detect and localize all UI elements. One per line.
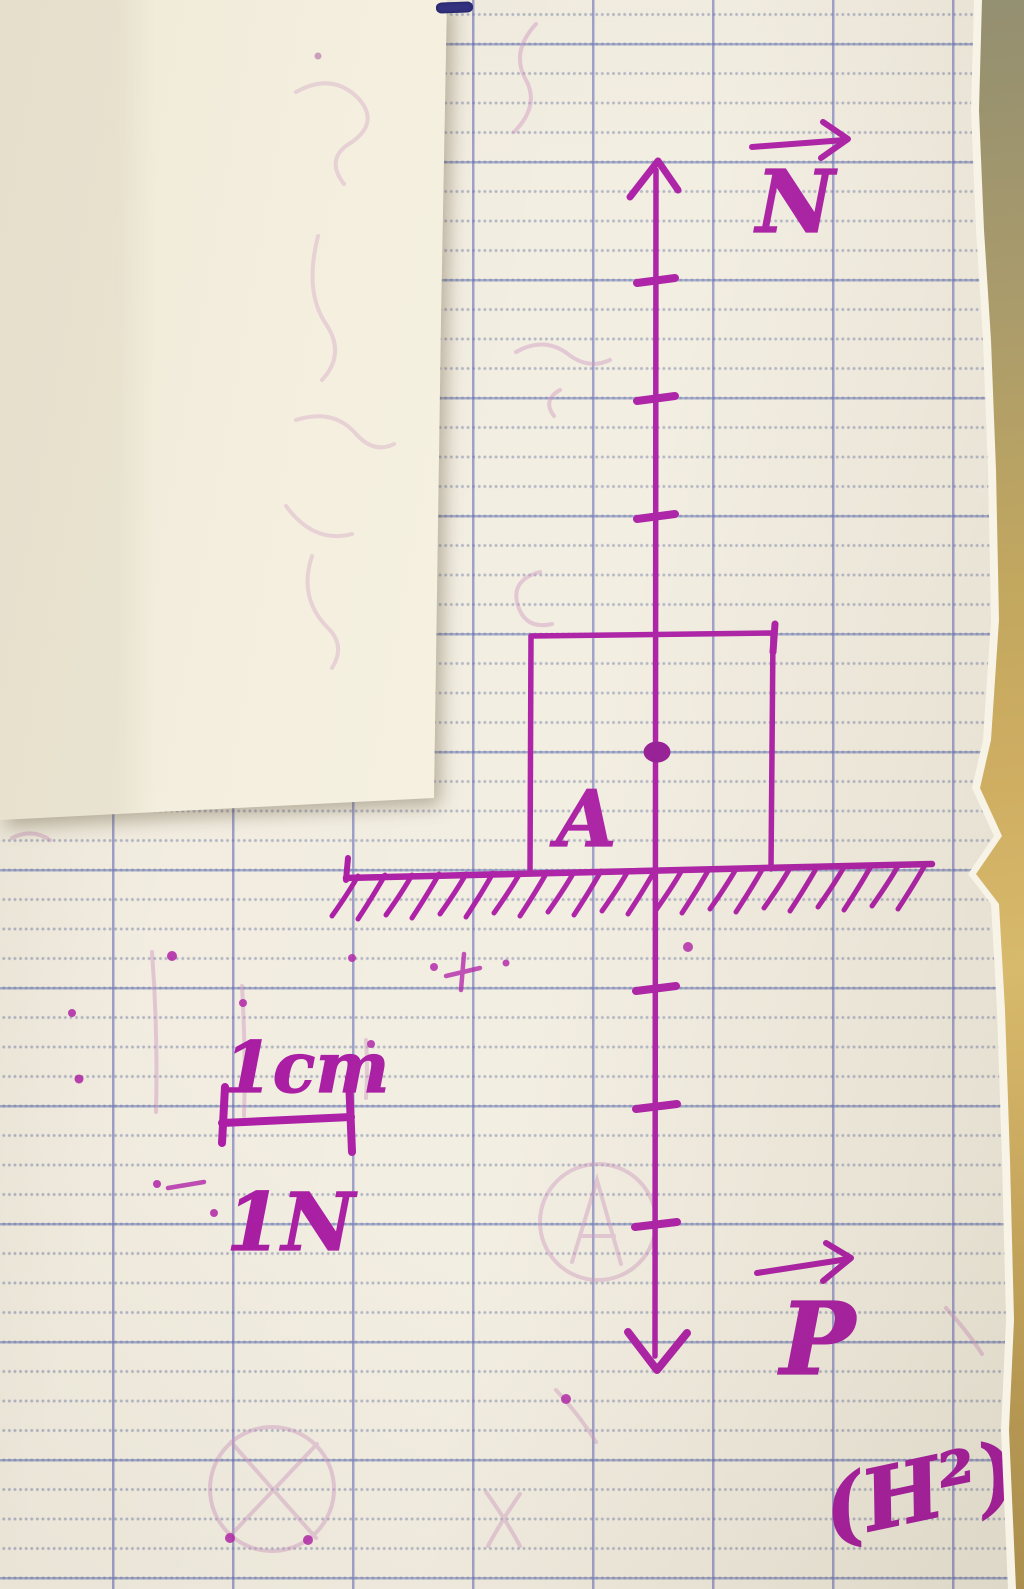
sheet-ink-dot bbox=[315, 53, 322, 60]
sheet-bleedthrough-scribbles bbox=[0, 0, 1024, 1589]
ink-blot bbox=[436, 1, 473, 13]
overlapping-sheet-shadow bbox=[0, 0, 1024, 1589]
photo-of-notebook-page: N P A 1cm 1N (H²) bbox=[0, 0, 1024, 1589]
overlapping-sheet bbox=[0, 0, 1024, 1589]
